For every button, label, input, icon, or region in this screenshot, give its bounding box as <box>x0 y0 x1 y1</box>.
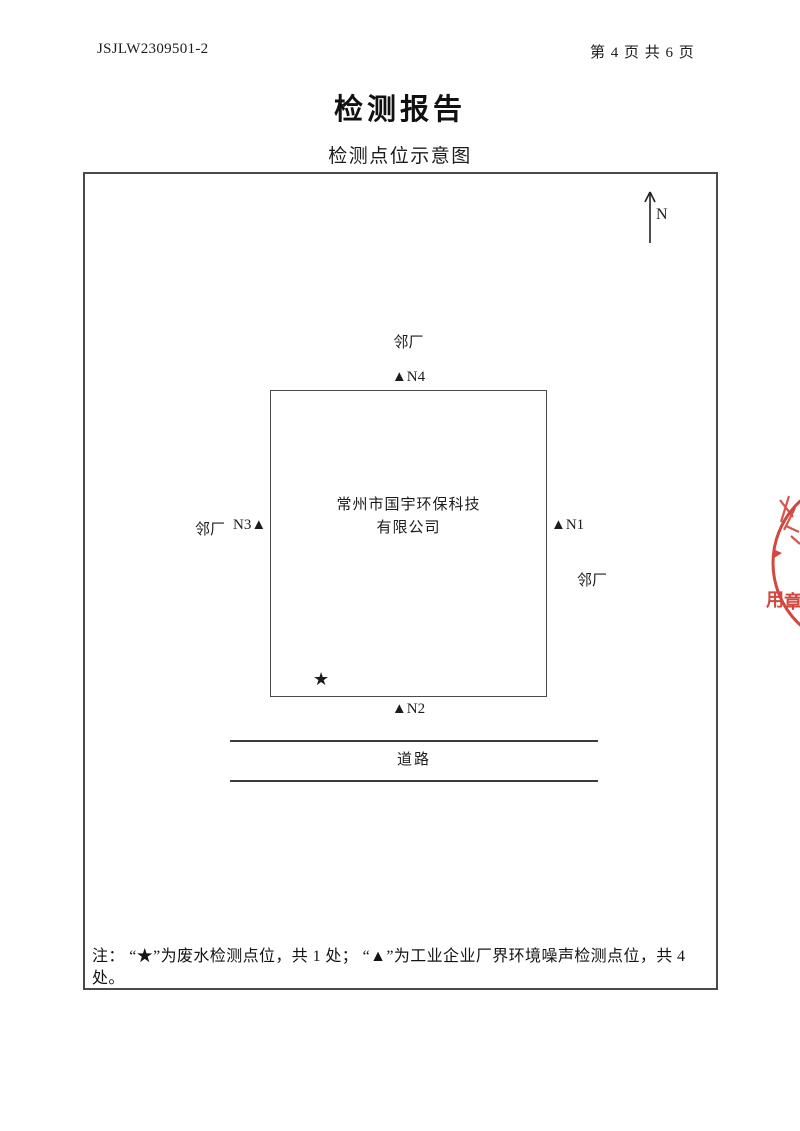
legend-note-line2: 处。 <box>92 968 712 990</box>
page-indicator: 第 4 页 共 6 页 <box>590 41 695 62</box>
company-name-line2: 有限公司 <box>270 517 547 540</box>
seal-char-1: 用 <box>766 590 784 610</box>
neighbor-factory-label-top: 邻厂 <box>270 331 547 352</box>
company-name: 常州市国宇环保科技 有限公司 <box>270 494 547 540</box>
company-name-line1: 常州市国宇环保科技 <box>270 494 547 517</box>
document-number: JSJLW2309501-2 <box>97 41 208 58</box>
neighbor-factory-label-left: 邻厂 <box>195 518 225 539</box>
road-label: 道路 <box>230 748 598 769</box>
seal-stroke-wedge <box>773 549 782 558</box>
noise-point-n1: ▲N1 <box>551 517 584 534</box>
noise-point-n2: ▲N2 <box>270 701 547 718</box>
noise-point-n3: N3▲ <box>233 517 266 534</box>
diagram-subtitle: 检测点位示意图 <box>0 141 800 168</box>
report-page: JSJLW2309501-2 第 4 页 共 6 页 检测报告 检测点位示意图 … <box>0 0 800 1131</box>
seal-char-2: 章 <box>784 591 800 612</box>
legend-note: 注： “★”为废水检测点位，共 1 处； “▲”为工业企业厂界环境噪声检测点位，… <box>92 946 712 990</box>
road-edge-top <box>230 740 598 742</box>
north-arrow-icon: N <box>632 188 678 250</box>
noise-point-n4: ▲N4 <box>270 369 547 386</box>
wastewater-point-star-icon: ★ <box>313 670 329 688</box>
legend-note-line1: 注： “★”为废水检测点位，共 1 处； “▲”为工业企业厂界环境噪声检测点位，… <box>92 946 712 968</box>
neighbor-factory-label-right: 邻厂 <box>577 569 607 590</box>
north-label: N <box>656 206 668 223</box>
report-title: 检测报告 <box>0 86 800 128</box>
red-seal-fragment: 用 章 <box>766 486 800 642</box>
road-edge-bottom <box>230 780 598 782</box>
factory-boundary-rect <box>270 390 547 697</box>
